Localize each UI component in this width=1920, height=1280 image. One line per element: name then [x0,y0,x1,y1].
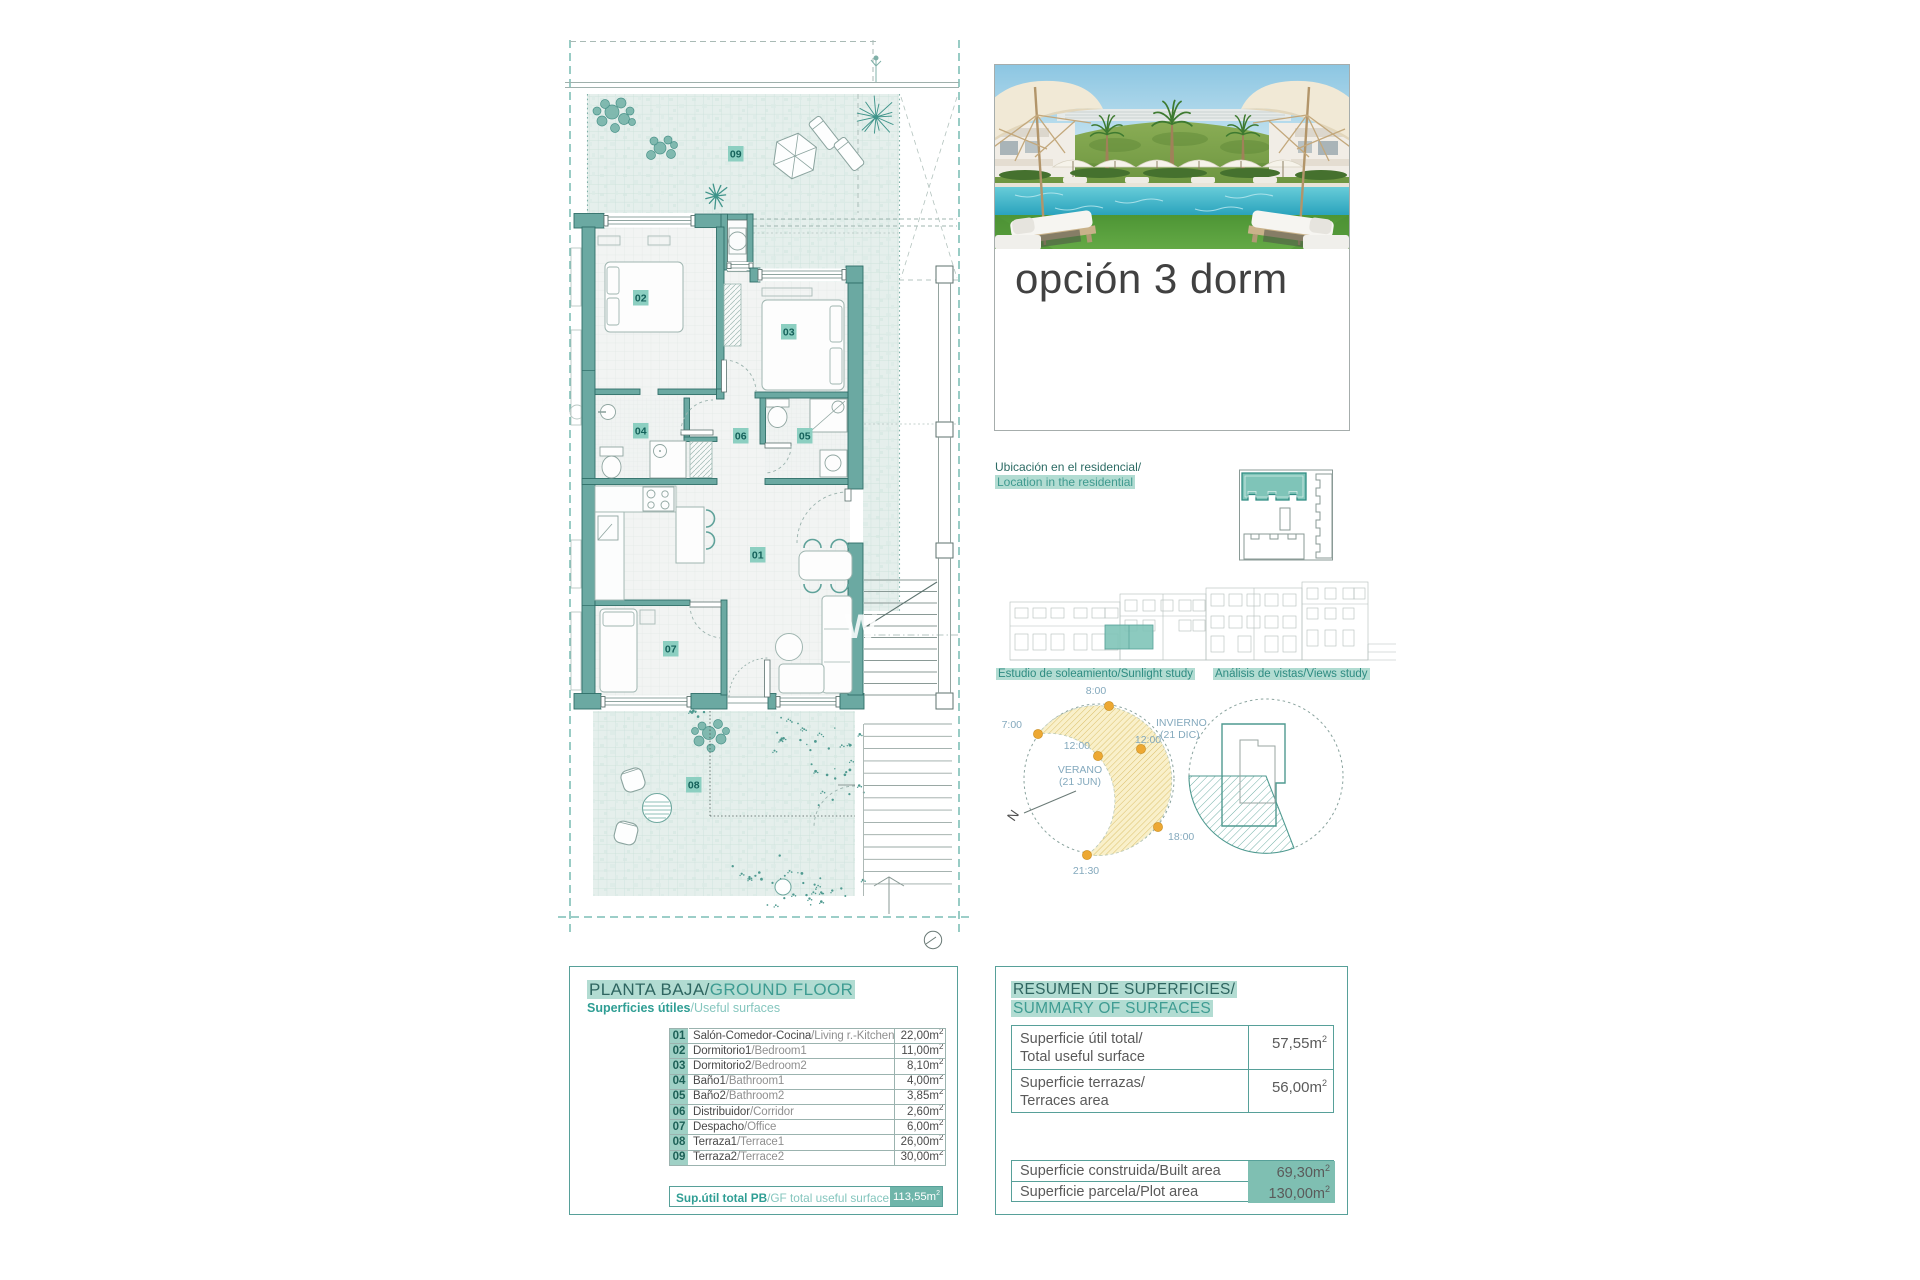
svg-text:06: 06 [735,430,747,442]
svg-text:01: 01 [752,549,764,561]
svg-text:8:00: 8:00 [1086,685,1107,697]
svg-text:02: 02 [635,292,647,304]
svg-text:INVIERNO: INVIERNO [1156,717,1207,729]
svg-text:12:00: 12:00 [1064,740,1090,752]
svg-text:03: 03 [783,326,795,338]
svg-text:09: 09 [730,148,742,160]
svg-text:07: 07 [665,643,677,655]
svg-text:12:00: 12:00 [1135,734,1161,746]
svg-text:04: 04 [635,425,647,437]
svg-text:08: 08 [688,779,700,791]
svg-text:21:30: 21:30 [1073,865,1099,877]
svg-text:VERANO: VERANO [1058,764,1102,776]
svg-text:N: N [1004,807,1022,824]
svg-text:(21 DIC): (21 DIC) [1160,729,1200,741]
svg-text:7:00: 7:00 [1002,719,1023,731]
svg-text:(21 JUN): (21 JUN) [1059,776,1101,788]
svg-text:18:00: 18:00 [1168,831,1194,843]
svg-text:05: 05 [799,430,811,442]
svg-text:W: W [845,608,880,646]
